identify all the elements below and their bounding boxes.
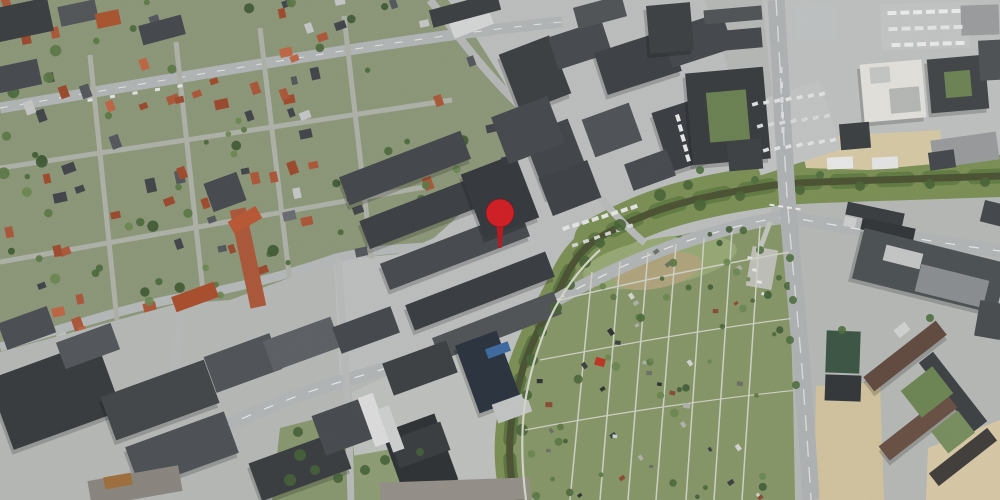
photo-grain [0,0,1000,500]
map-viewport[interactable] [0,0,1000,500]
pin-head [486,199,514,227]
aerial-map-canvas[interactable] [0,0,1000,500]
